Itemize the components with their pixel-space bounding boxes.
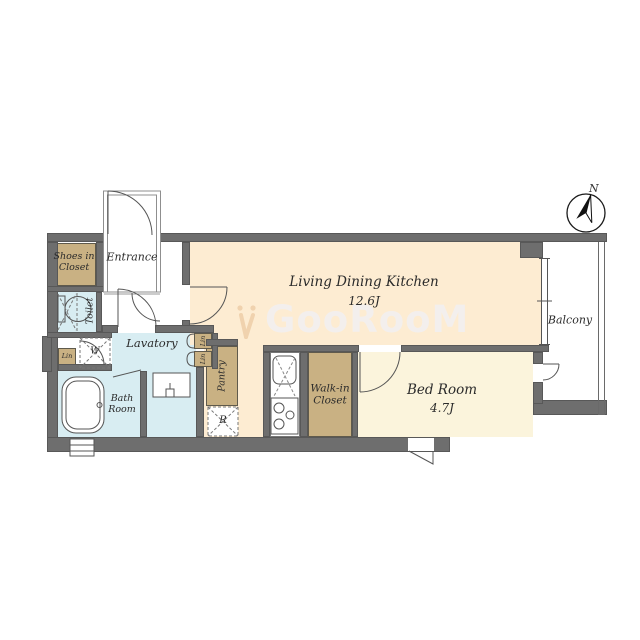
bedroom-door-gap <box>359 345 401 352</box>
entrance-door-arc <box>108 191 152 235</box>
entrance-porch-outline-inner <box>108 195 157 292</box>
label-linen-lower: Lin <box>200 354 207 365</box>
bedroom-bottom-vent-gap <box>408 438 434 451</box>
lavatory-door-arc <box>118 289 156 327</box>
label-ldk-size: 12.6J <box>334 294 394 308</box>
label-shoes-in-closet: Shoes in Closet <box>49 251 99 273</box>
bathtub-icon <box>62 377 104 433</box>
label-linen-upper: Lin <box>200 336 207 347</box>
balcony-railing <box>598 242 605 415</box>
label-bed-room-size: 4.7J <box>412 401 472 415</box>
label-bath-room: Bath Room <box>104 393 140 415</box>
compass: N <box>560 179 612 237</box>
label-balcony: Balcony <box>540 315 600 328</box>
kitchen-counter-icon <box>271 353 300 437</box>
vanity-sink-icon <box>153 373 190 397</box>
balcony-door-arc <box>543 364 559 380</box>
bath-window <box>70 439 94 456</box>
label-toilet: Toilet <box>85 298 95 325</box>
toilet-door-dashes <box>58 293 77 331</box>
label-walk-in-closet: Walk-in Closet <box>304 383 356 408</box>
bedroom-bottom-flap <box>409 451 433 464</box>
label-pantry: Pantry <box>217 360 227 391</box>
label-refrigerator: R <box>213 415 233 427</box>
bath-door-line <box>113 370 141 377</box>
label-entrance: Entrance <box>97 252 167 265</box>
ldk-door-arc <box>190 287 227 324</box>
label-lavatory: Lavatory <box>112 337 192 351</box>
label-washer: W <box>85 347 105 358</box>
compass-north-label: N <box>588 182 599 195</box>
entrance-porch-outline <box>104 191 161 292</box>
label-ldk: Living Dining Kitchen <box>264 275 464 291</box>
balcony-door-gap <box>533 364 543 382</box>
ldk-window <box>537 258 552 345</box>
floor-plan: GooRooM Shoes in Closet Entrance Toilet … <box>0 0 640 640</box>
entrance-inner-arc <box>132 293 160 321</box>
north-arrow-icon <box>576 193 598 223</box>
watermark-logo-icon <box>231 301 261 341</box>
label-linen-left: Lin <box>57 353 77 361</box>
label-bed-room: Bed Room <box>392 383 492 399</box>
